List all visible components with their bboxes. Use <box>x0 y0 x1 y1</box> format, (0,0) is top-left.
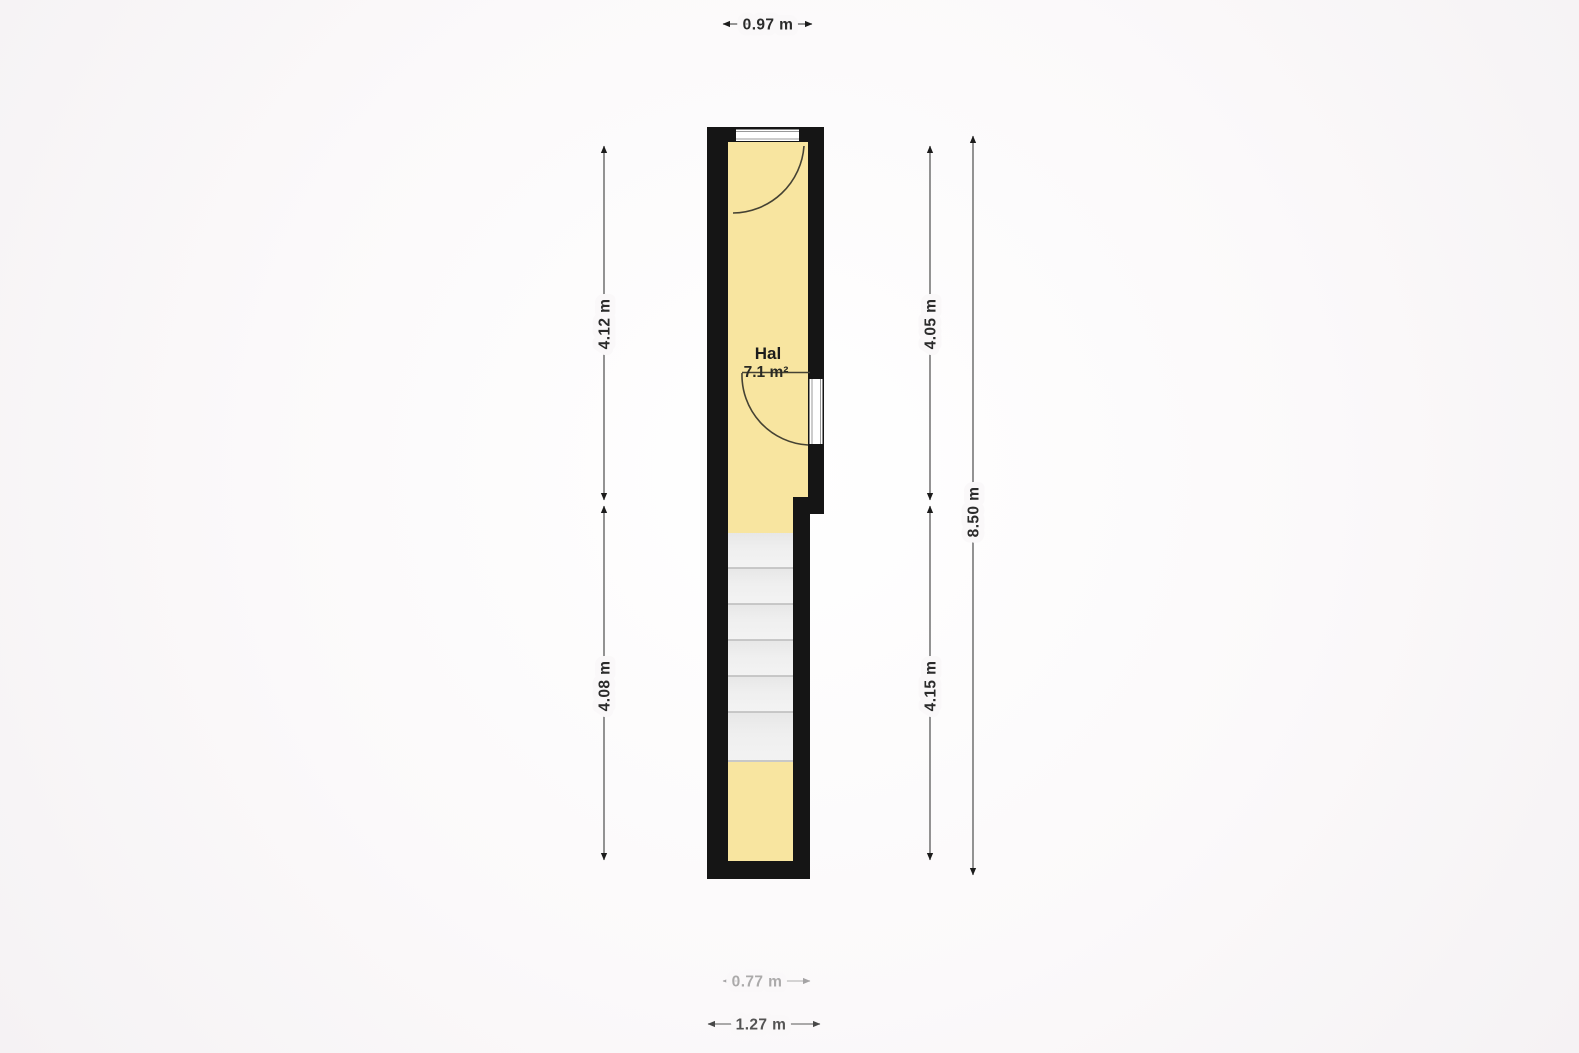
interior-door-jamb <box>808 366 824 379</box>
stair-tread <box>728 568 793 604</box>
dimension-right-lower: 4.15 m <box>923 506 940 860</box>
room-name: Hal <box>755 344 781 363</box>
room-area: 7.1 m² <box>744 364 789 381</box>
dimension-label: 4.08 m <box>597 661 614 712</box>
stair-tread <box>728 533 793 568</box>
entry-door-jamb <box>725 127 736 142</box>
dimension-label: 8.50 m <box>966 487 983 538</box>
floorplan-page: Hal 7.1 m² 0.97 m 4.12 m 4.08 m 4.05 m 4… <box>0 0 1579 1053</box>
stair-tread <box>728 676 793 712</box>
stair-tread <box>728 640 793 676</box>
entry-door-jamb <box>799 127 810 142</box>
dimension-bottom-outer: 1.27 m <box>708 1017 820 1034</box>
dimension-label: 4.15 m <box>923 661 940 712</box>
dimension-label: 4.05 m <box>923 299 940 350</box>
dimension-label: 0.97 m <box>743 17 794 34</box>
dimension-label: 1.27 m <box>736 1017 787 1034</box>
dimension-label: 0.77 m <box>732 974 783 991</box>
dimension-left-upper: 4.12 m <box>597 146 614 500</box>
stair-tread <box>728 604 793 640</box>
dimension-right-upper: 4.05 m <box>923 146 940 500</box>
dimension-left-lower: 4.08 m <box>597 506 614 860</box>
stair-tread <box>728 712 793 762</box>
staircase <box>728 533 793 762</box>
floor-plan-canvas: Hal 7.1 m² 0.97 m 4.12 m 4.08 m 4.05 m 4… <box>0 0 1579 1053</box>
dimension-bottom-inner: 0.77 m <box>723 974 810 991</box>
dimension-right-total: 8.50 m <box>966 136 983 875</box>
dimension-label: 4.12 m <box>597 299 614 350</box>
dimension-top-width: 0.97 m <box>723 17 812 34</box>
interior-door-jamb <box>808 444 824 457</box>
